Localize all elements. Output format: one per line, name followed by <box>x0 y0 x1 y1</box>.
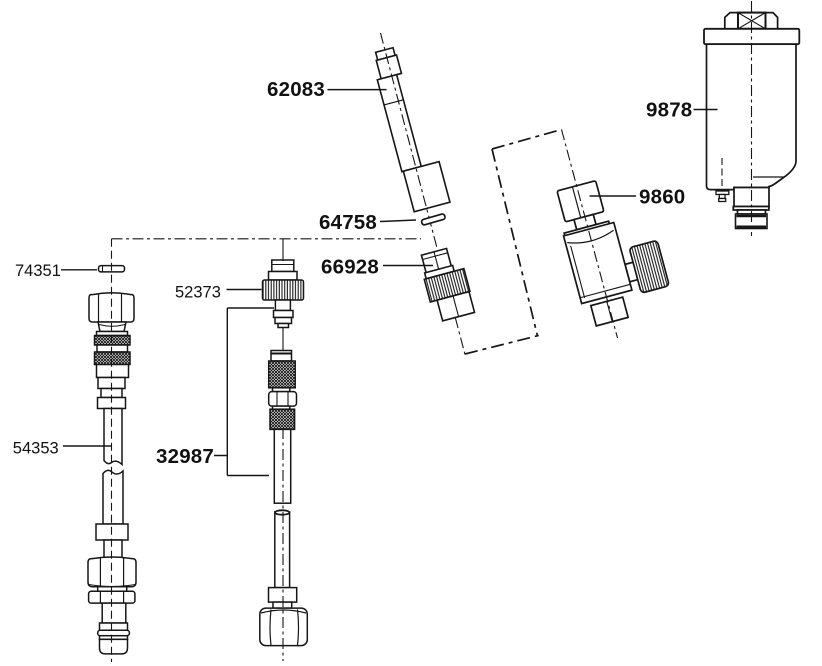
svg-text:64758: 64758 <box>319 211 377 234</box>
svg-text:52373: 52373 <box>175 284 221 302</box>
svg-text:9878: 9878 <box>646 99 692 122</box>
svg-text:9860: 9860 <box>639 186 685 209</box>
svg-text:32987: 32987 <box>156 445 214 468</box>
svg-text:74351: 74351 <box>15 262 61 280</box>
svg-text:54353: 54353 <box>13 440 59 458</box>
svg-text:62083: 62083 <box>267 78 325 101</box>
svg-text:66928: 66928 <box>321 256 379 279</box>
